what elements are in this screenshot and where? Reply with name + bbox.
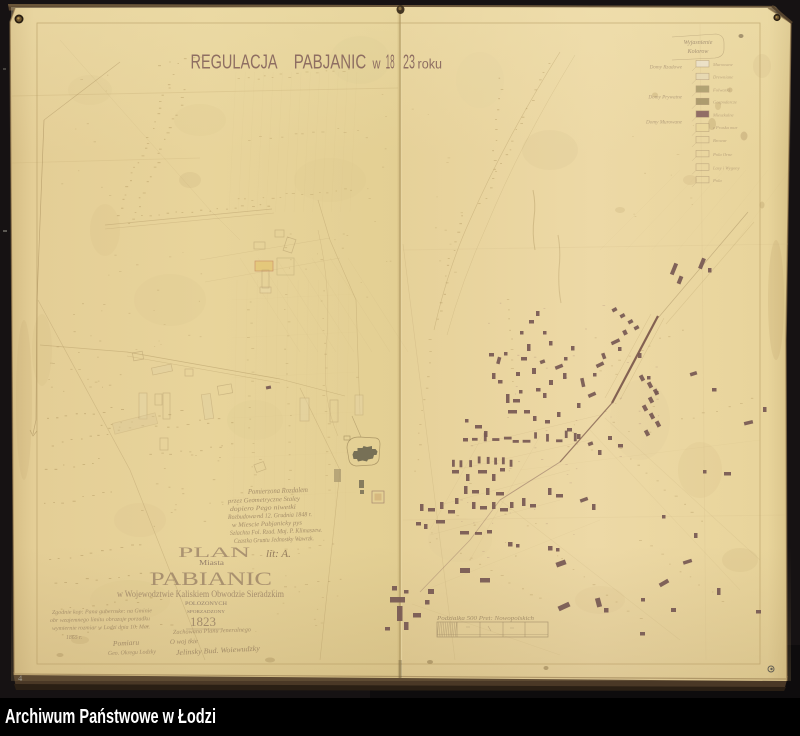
svg-text:Wyjasnienie: Wyjasnienie: [684, 40, 713, 46]
svg-text:Archiwum Państwowe w Łodzi: Archiwum Państwowe w Łodzi: [5, 706, 216, 728]
svg-text:1865 r.: 1865 r.: [66, 635, 82, 641]
svg-text:PABIANIC: PABIANIC: [150, 570, 272, 590]
svg-text:18: 18: [386, 51, 395, 74]
svg-text:w Wojewodztwie Kaliskiem Obwod: w Wojewodztwie Kaliskiem Obwodzie Sierad…: [117, 589, 284, 599]
svg-text:Gospodarcze: Gospodarcze: [713, 100, 737, 105]
svg-text:Podzialka 500 Pret: Nowopolski: Podzialka 500 Pret: Nowopolskich: [436, 616, 534, 622]
svg-text:Pola Orne: Pola Orne: [712, 152, 732, 157]
svg-text:23: 23: [403, 51, 415, 74]
svg-text:roku: roku: [418, 56, 443, 72]
svg-text:PABJANIC: PABJANIC: [294, 51, 367, 74]
svg-text:PLAN: PLAN: [178, 545, 251, 561]
svg-text:Folwarki: Folwarki: [712, 87, 731, 92]
svg-text:z Pruska mur: z Pruska mur: [712, 125, 738, 130]
svg-text:Murowane: Murowane: [712, 62, 733, 67]
svg-text:Kolorow: Kolorow: [687, 49, 709, 55]
svg-text:REGULACJA: REGULACJA: [191, 51, 278, 74]
svg-text:Domy Prywatne: Domy Prywatne: [647, 95, 682, 101]
svg-text:lit: A.: lit: A.: [266, 548, 291, 560]
svg-text:Domy Murowane: Domy Murowane: [645, 120, 683, 126]
svg-text:Lasy i Wygony: Lasy i Wygony: [712, 165, 741, 170]
svg-text:Pomiaru: Pomiaru: [112, 638, 140, 648]
svg-text:Drewniane: Drewniane: [712, 75, 733, 80]
svg-text:POLOZONYCH: POLOZONYCH: [185, 601, 227, 607]
svg-text:Browar: Browar: [713, 138, 727, 143]
svg-text:Pola: Pola: [712, 178, 722, 183]
svg-text:Domy Rzadowe: Domy Rzadowe: [649, 65, 683, 71]
svg-text:O woj tkie: O woj tkie: [170, 638, 198, 646]
svg-text:Mieszkalne: Mieszkalne: [712, 112, 734, 117]
svg-text:Miasta: Miasta: [199, 560, 224, 567]
svg-text:w: w: [372, 56, 381, 73]
